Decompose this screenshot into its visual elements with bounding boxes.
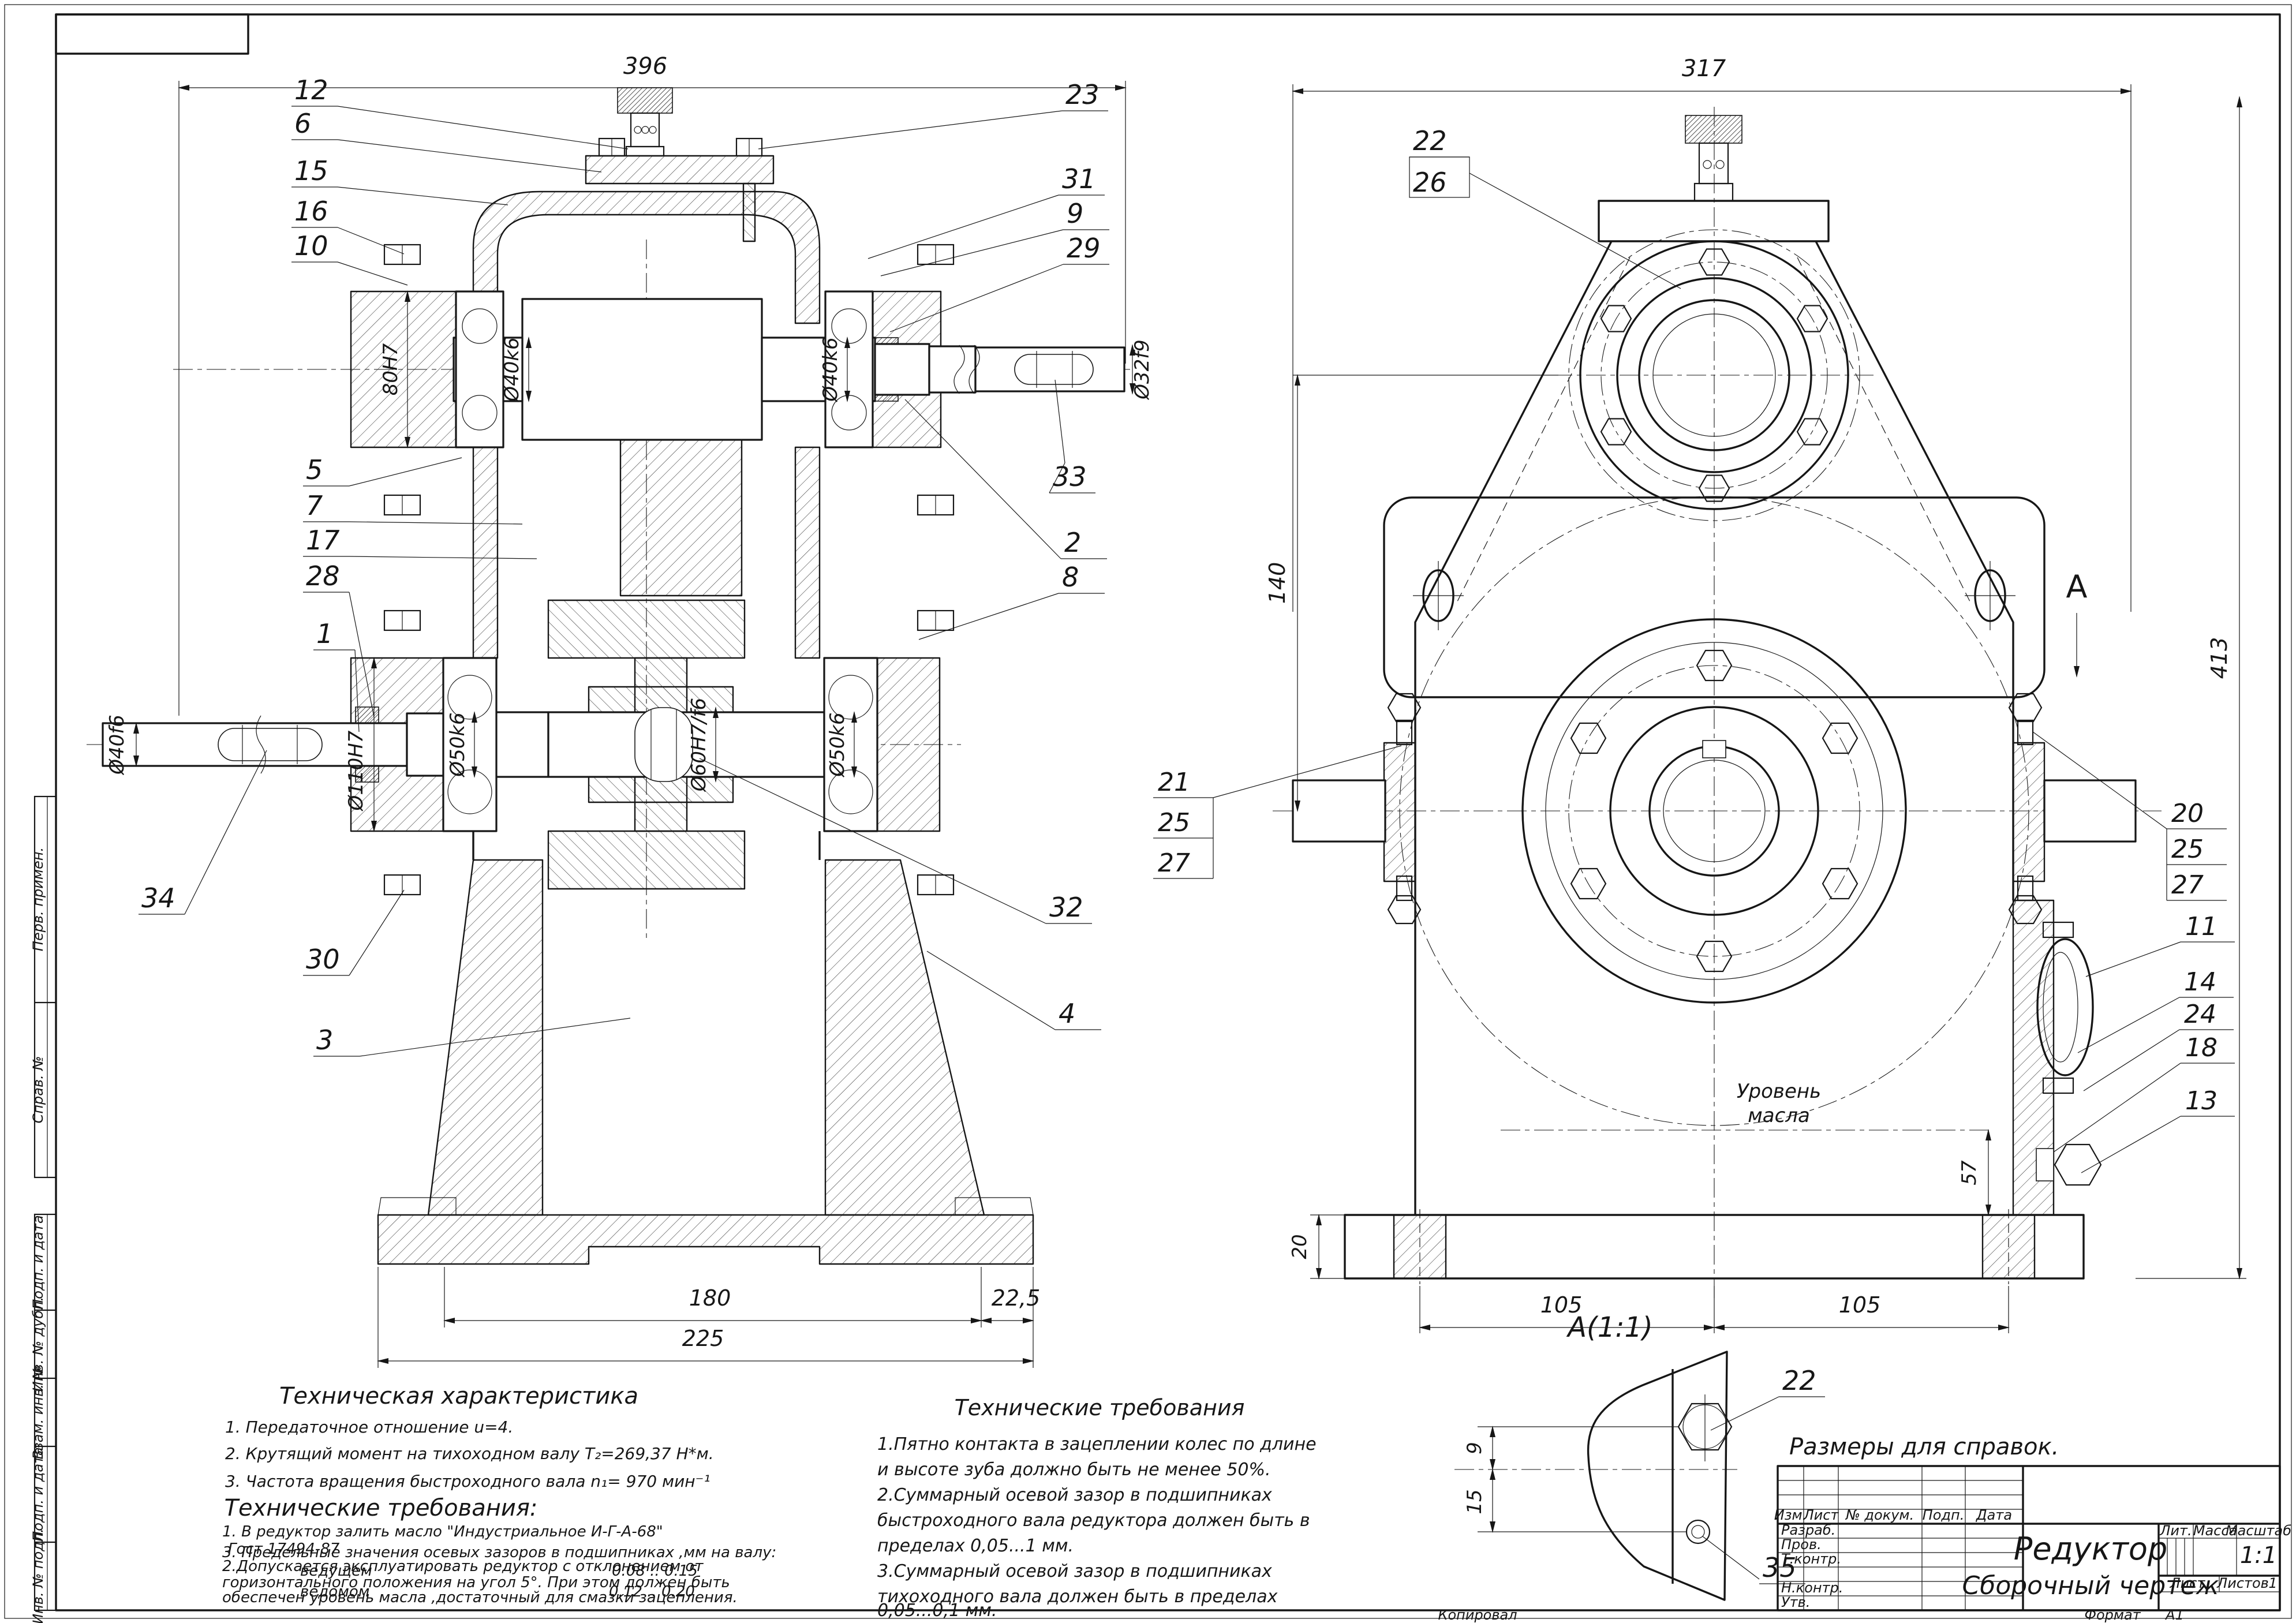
tech-req-c-1: 1.Пятно контакта в зацеплении колес по д… xyxy=(877,1434,1317,1454)
detail-a-title: А(1:1) xyxy=(1566,1311,1653,1344)
side-hidden-right xyxy=(1797,257,1970,603)
front-view: 396 80H7 Ø40k6 Ø40k6 Ø32f9 Ø40f6 Ø110H7 … xyxy=(87,53,1154,1368)
callout-12: 12 xyxy=(291,74,628,149)
tech-req-3a-value: 0.08 .. 0.15 xyxy=(612,1562,698,1580)
dim-15: 15 xyxy=(1463,1489,1486,1514)
tech-req-3b-label: ведомом xyxy=(300,1583,369,1600)
reference-note: Размеры для справок. xyxy=(1789,1434,2059,1460)
tech-char-1: 1. Передаточное отношение u=4. xyxy=(225,1418,513,1437)
tech-req-1: 1. В редуктор залить масло "Индустриальн… xyxy=(222,1523,663,1540)
fast-bearing-left xyxy=(456,291,503,447)
tb-podp: Подп. xyxy=(1923,1507,1965,1523)
input-keyway xyxy=(218,728,322,761)
dim-396: 396 xyxy=(623,53,667,80)
stamp-sprav-no: Справ. № xyxy=(30,1056,46,1124)
callout-4: 4 xyxy=(927,951,1101,1030)
callout-10: 10 xyxy=(291,230,407,285)
dim-d32f9: Ø32f9 xyxy=(1131,339,1154,401)
dim-d40k6-left: Ø40k6 xyxy=(500,337,523,402)
svg-text:27: 27 xyxy=(2171,870,2204,900)
tb-prov: Пров. xyxy=(1781,1536,1822,1553)
svg-text:24: 24 xyxy=(2184,1000,2216,1029)
callout-6: 6 xyxy=(291,108,601,172)
svg-text:11: 11 xyxy=(2185,912,2218,941)
dim-57: 57 xyxy=(1958,1160,1981,1186)
tech-char-2: 2. Крутящий момент на тихоходном валу Т₂… xyxy=(225,1444,714,1463)
callout-30: 30 xyxy=(303,890,404,975)
tech-char-title: Техническая характеристика xyxy=(279,1383,638,1409)
view-a-arrow: A xyxy=(2066,569,2088,676)
svg-text:9: 9 xyxy=(1067,198,1083,229)
dim-317: 317 xyxy=(1682,55,1726,82)
svg-text:31: 31 xyxy=(1062,163,1096,195)
tech-req-3a-label: ведущем xyxy=(300,1562,372,1580)
svg-text:28: 28 xyxy=(306,560,340,592)
svg-text:21: 21 xyxy=(1158,768,1190,797)
svg-text:30: 30 xyxy=(306,944,340,975)
housing-wall-left xyxy=(473,447,498,658)
housing-wall-right xyxy=(795,447,820,658)
side-callouts: 22 26 21 25 27 20 25 27 xyxy=(1153,125,2235,1173)
tech-req-c-6: 3.Суммарный осевой зазор в подшипниках xyxy=(877,1561,1272,1581)
svg-text:10: 10 xyxy=(294,230,328,261)
svg-text:1: 1 xyxy=(316,618,333,649)
kopiroval-label: Копировал xyxy=(1438,1607,1517,1623)
tech-req-c-2: и высоте зуба должно быть не менее 50%. xyxy=(877,1460,1271,1480)
callout-5: 5 xyxy=(303,454,462,486)
svg-text:17: 17 xyxy=(306,525,340,556)
callout-8: 8 xyxy=(919,562,1105,640)
side-right-boss xyxy=(2009,694,2136,923)
dim-d50k6-right: Ø50k6 xyxy=(826,712,849,777)
callout-23: 23 xyxy=(758,79,1108,149)
svg-text:34: 34 xyxy=(141,882,175,914)
tech-requirements-left-block: Технические требования: 1. В редуктор за… xyxy=(222,1495,776,1606)
svg-text:7: 7 xyxy=(306,490,323,521)
frame-stamp-columns: Перв. примен. Справ. № Подп. и дата Инв.… xyxy=(30,796,56,1623)
view-a-letter: A xyxy=(2066,569,2088,605)
side-breather-cap xyxy=(1685,115,1742,201)
svg-text:6: 6 xyxy=(294,108,311,139)
dim-413: 413 xyxy=(2207,637,2232,679)
oil-level: Уровень масла xyxy=(1501,1080,1990,1130)
tech-req-c-5: пределах 0,05...1 мм. xyxy=(877,1536,1074,1556)
svg-text:27: 27 xyxy=(1158,848,1190,878)
tb-masshtab: Масштаб xyxy=(2226,1523,2291,1539)
svg-text:15: 15 xyxy=(294,155,328,186)
oil-level-line2: масла xyxy=(1748,1104,1810,1127)
tb-tkontr: Т.контр. xyxy=(1781,1551,1841,1567)
dim-d110H7: Ø110H7 xyxy=(345,730,368,811)
dim-d60H7f6: Ø60H7/f6 xyxy=(687,698,711,792)
fast-shaft xyxy=(454,299,1124,596)
tb-product-name: Редуктор xyxy=(2014,1531,2167,1567)
svg-text:3: 3 xyxy=(316,1024,333,1056)
svg-text:16: 16 xyxy=(294,196,328,227)
sheet-frame: Перв. примен. Справ. № Подп. и дата Инв.… xyxy=(5,5,2291,1623)
svg-text:20: 20 xyxy=(2171,799,2204,828)
svg-text:13: 13 xyxy=(2185,1086,2218,1116)
tech-req-c-title: Технические требования xyxy=(955,1395,1245,1420)
stamp-vzam-inv: Взам. инв. № xyxy=(30,1366,46,1460)
dim-d40f6: Ø40f6 xyxy=(106,715,129,776)
side-top-plate xyxy=(1599,201,1828,241)
detail-a-outline xyxy=(1588,1352,1727,1600)
title-block: Изм. Лист № докум. Подп. Дата Разраб. Пр… xyxy=(1774,1466,2291,1610)
dim-9: 9 xyxy=(1463,1442,1486,1454)
tb-doc-type: Сборочный чертеж xyxy=(1962,1571,2219,1600)
side-keyway xyxy=(1703,741,1726,758)
tb-nkontr: Н.контр. xyxy=(1781,1580,1843,1596)
svg-text:8: 8 xyxy=(1062,562,1079,593)
callout-33: 33 xyxy=(1049,380,1095,493)
svg-text:4: 4 xyxy=(1059,998,1075,1029)
dim-180: 180 xyxy=(689,1285,731,1311)
svg-text:14: 14 xyxy=(2184,967,2216,997)
tech-req-title: Технические требования: xyxy=(225,1495,538,1521)
pinion-teeth xyxy=(620,440,742,596)
tech-req-c-3: 2.Суммарный осевой зазор в подшипниках xyxy=(877,1485,1272,1505)
dim-20: 20 xyxy=(1288,1234,1311,1259)
output-keyway xyxy=(1015,354,1093,384)
side-hidden-left xyxy=(1457,257,1630,603)
tb-data: Дата xyxy=(1976,1507,2012,1523)
tech-characteristic-block: Техническая характеристика 1. Передаточн… xyxy=(225,1383,714,1491)
dim-105-right: 105 xyxy=(1839,1292,1881,1318)
big-gear xyxy=(548,600,824,889)
stamp-inv-podl: Инв. № подл. xyxy=(30,1528,46,1623)
tech-req-3: 3. Предельные значения осевых зазоров в … xyxy=(222,1544,776,1561)
svg-text:22: 22 xyxy=(1413,125,1447,156)
tb-razrab: Разраб. xyxy=(1781,1522,1835,1538)
callout-13: 13 xyxy=(2081,1086,2235,1173)
drawing-sheet: Перв. примен. Справ. № Подп. и дата Инв.… xyxy=(0,0,2296,1623)
dim-225: 225 xyxy=(682,1326,724,1351)
dim-80H7: 80H7 xyxy=(379,343,402,395)
bearing-cover-slow-right xyxy=(877,658,940,831)
tb-utv: Утв. xyxy=(1781,1594,1810,1610)
format-value: А1 xyxy=(2164,1607,2184,1623)
stamp-perv-primen: Перв. примен. xyxy=(30,847,46,951)
detail-small-hole xyxy=(1687,1520,1710,1543)
callout-17: 17 xyxy=(303,525,537,559)
side-left-boss xyxy=(1293,694,1420,923)
stamp-podp-data-1: Подп. и дата xyxy=(30,1215,46,1310)
tech-char-3: 3. Частота вращения быстроходного вала n… xyxy=(225,1472,711,1491)
stamp-podp-data-2: Подп. и дата xyxy=(30,1447,46,1542)
tech-req-3b-value: 0.12 .. 0.20 xyxy=(609,1583,695,1600)
leg-right xyxy=(825,860,984,1215)
svg-text:29: 29 xyxy=(1067,233,1101,264)
dim-140: 140 xyxy=(1265,562,1290,604)
top-left-stamp-box xyxy=(56,14,248,54)
svg-text:26: 26 xyxy=(1413,167,1447,198)
dim-d50k6-left: Ø50k6 xyxy=(446,712,469,777)
callout-34: 34 xyxy=(139,750,267,914)
tb-doc: № докум. xyxy=(1845,1507,1914,1523)
svg-text:12: 12 xyxy=(294,74,328,106)
bearing-boss-fast-left xyxy=(351,291,456,447)
inspection-cover xyxy=(586,139,773,241)
gear-keyway xyxy=(635,708,693,781)
tb-scale: 1:1 xyxy=(2240,1542,2277,1569)
tech-requirements-center-block: Технические требования 1.Пятно контакта … xyxy=(877,1395,1317,1621)
svg-text:2: 2 xyxy=(1064,527,1081,558)
tech-req-c-4: быстроходного вала редуктора должен быть… xyxy=(877,1510,1310,1531)
side-view: Уровень масла A 317 413 140 57 20 xyxy=(1153,55,2246,1333)
svg-text:25: 25 xyxy=(2171,835,2204,864)
svg-text:5: 5 xyxy=(306,454,323,485)
svg-text:23: 23 xyxy=(1065,79,1100,110)
tech-req-c-8: 0,05...0,1 мм. xyxy=(877,1600,997,1621)
drain-plug xyxy=(2055,1145,2101,1185)
dim-d40k6-right: Ø40k6 xyxy=(819,337,842,402)
oil-level-line1: Уровень xyxy=(1737,1080,1821,1103)
svg-text:18: 18 xyxy=(2185,1033,2218,1063)
format-label: Формат xyxy=(2084,1607,2141,1623)
svg-text:22: 22 xyxy=(1782,1365,1816,1396)
breather-cap xyxy=(618,88,672,156)
detail-a-view: А(1:1) 9 15 22 35 xyxy=(1454,1311,1825,1600)
leg-left xyxy=(428,860,543,1215)
dim-22-5: 22,5 xyxy=(992,1285,1041,1311)
tb-listov-value: 1 xyxy=(2268,1575,2277,1591)
svg-text:32: 32 xyxy=(1049,892,1083,923)
tb-listov-label: Листов xyxy=(2216,1575,2269,1591)
tb-izm: Изм. xyxy=(1774,1507,1807,1523)
tb-list: Лист xyxy=(1803,1507,1839,1523)
svg-text:25: 25 xyxy=(1158,808,1190,837)
oil-sight-assembly xyxy=(2013,900,2101,1215)
